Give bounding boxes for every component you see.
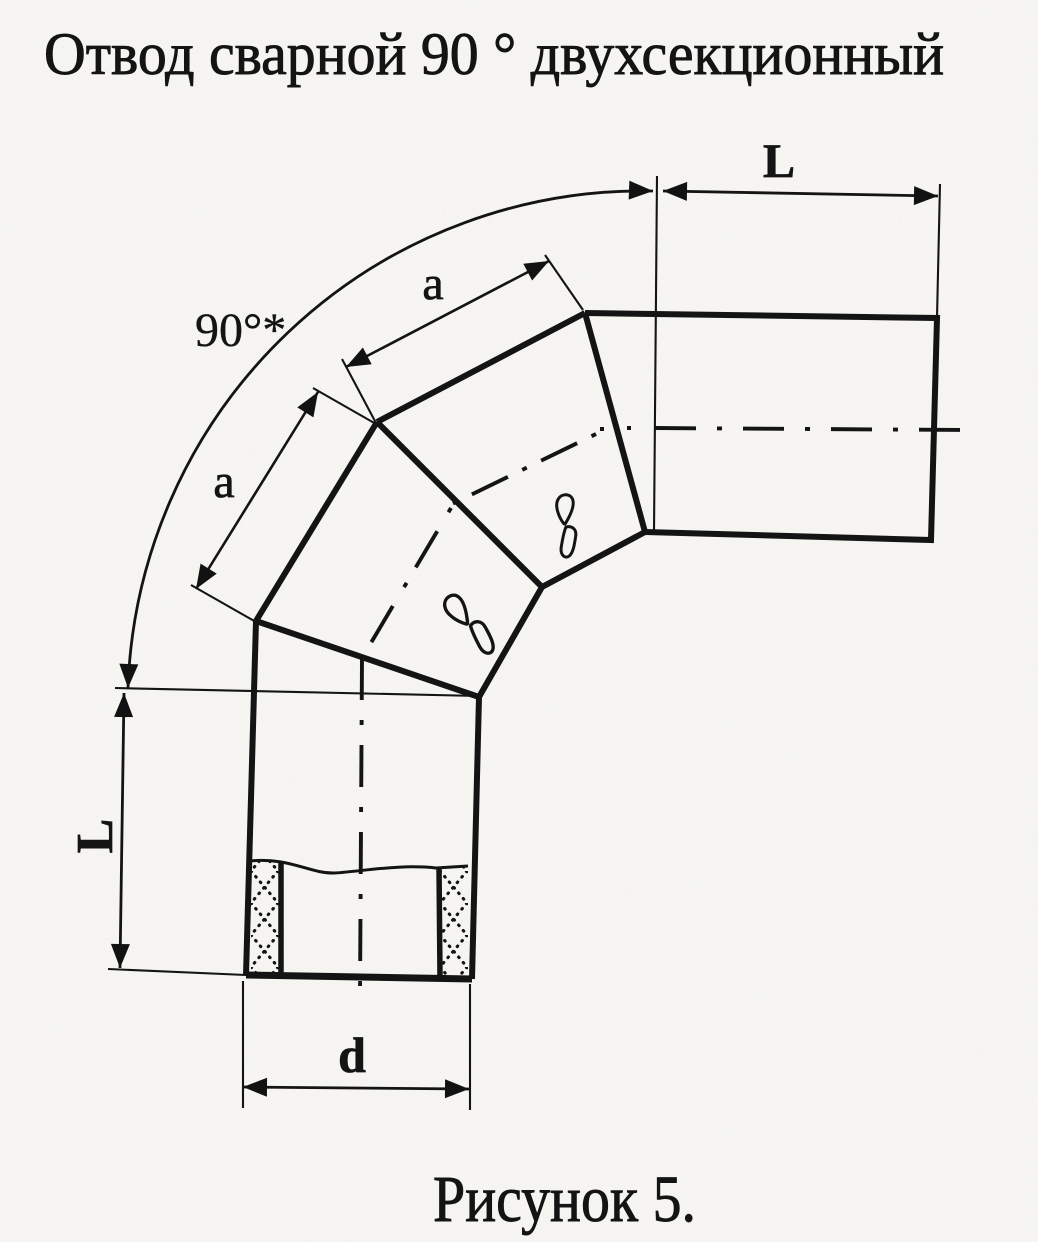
svg-text:d: d xyxy=(338,1027,366,1083)
svg-text:Отвод сварной 90 ° двухсекцион: Отвод сварной 90 ° двухсекционный xyxy=(44,21,944,87)
svg-text:a: a xyxy=(422,257,443,310)
svg-text:L: L xyxy=(67,819,124,854)
svg-text:L: L xyxy=(763,135,795,188)
svg-text:90°*: 90°* xyxy=(195,304,286,357)
svg-text:Рисунок 5.: Рисунок 5. xyxy=(433,1163,696,1236)
svg-text:a: a xyxy=(213,455,234,508)
